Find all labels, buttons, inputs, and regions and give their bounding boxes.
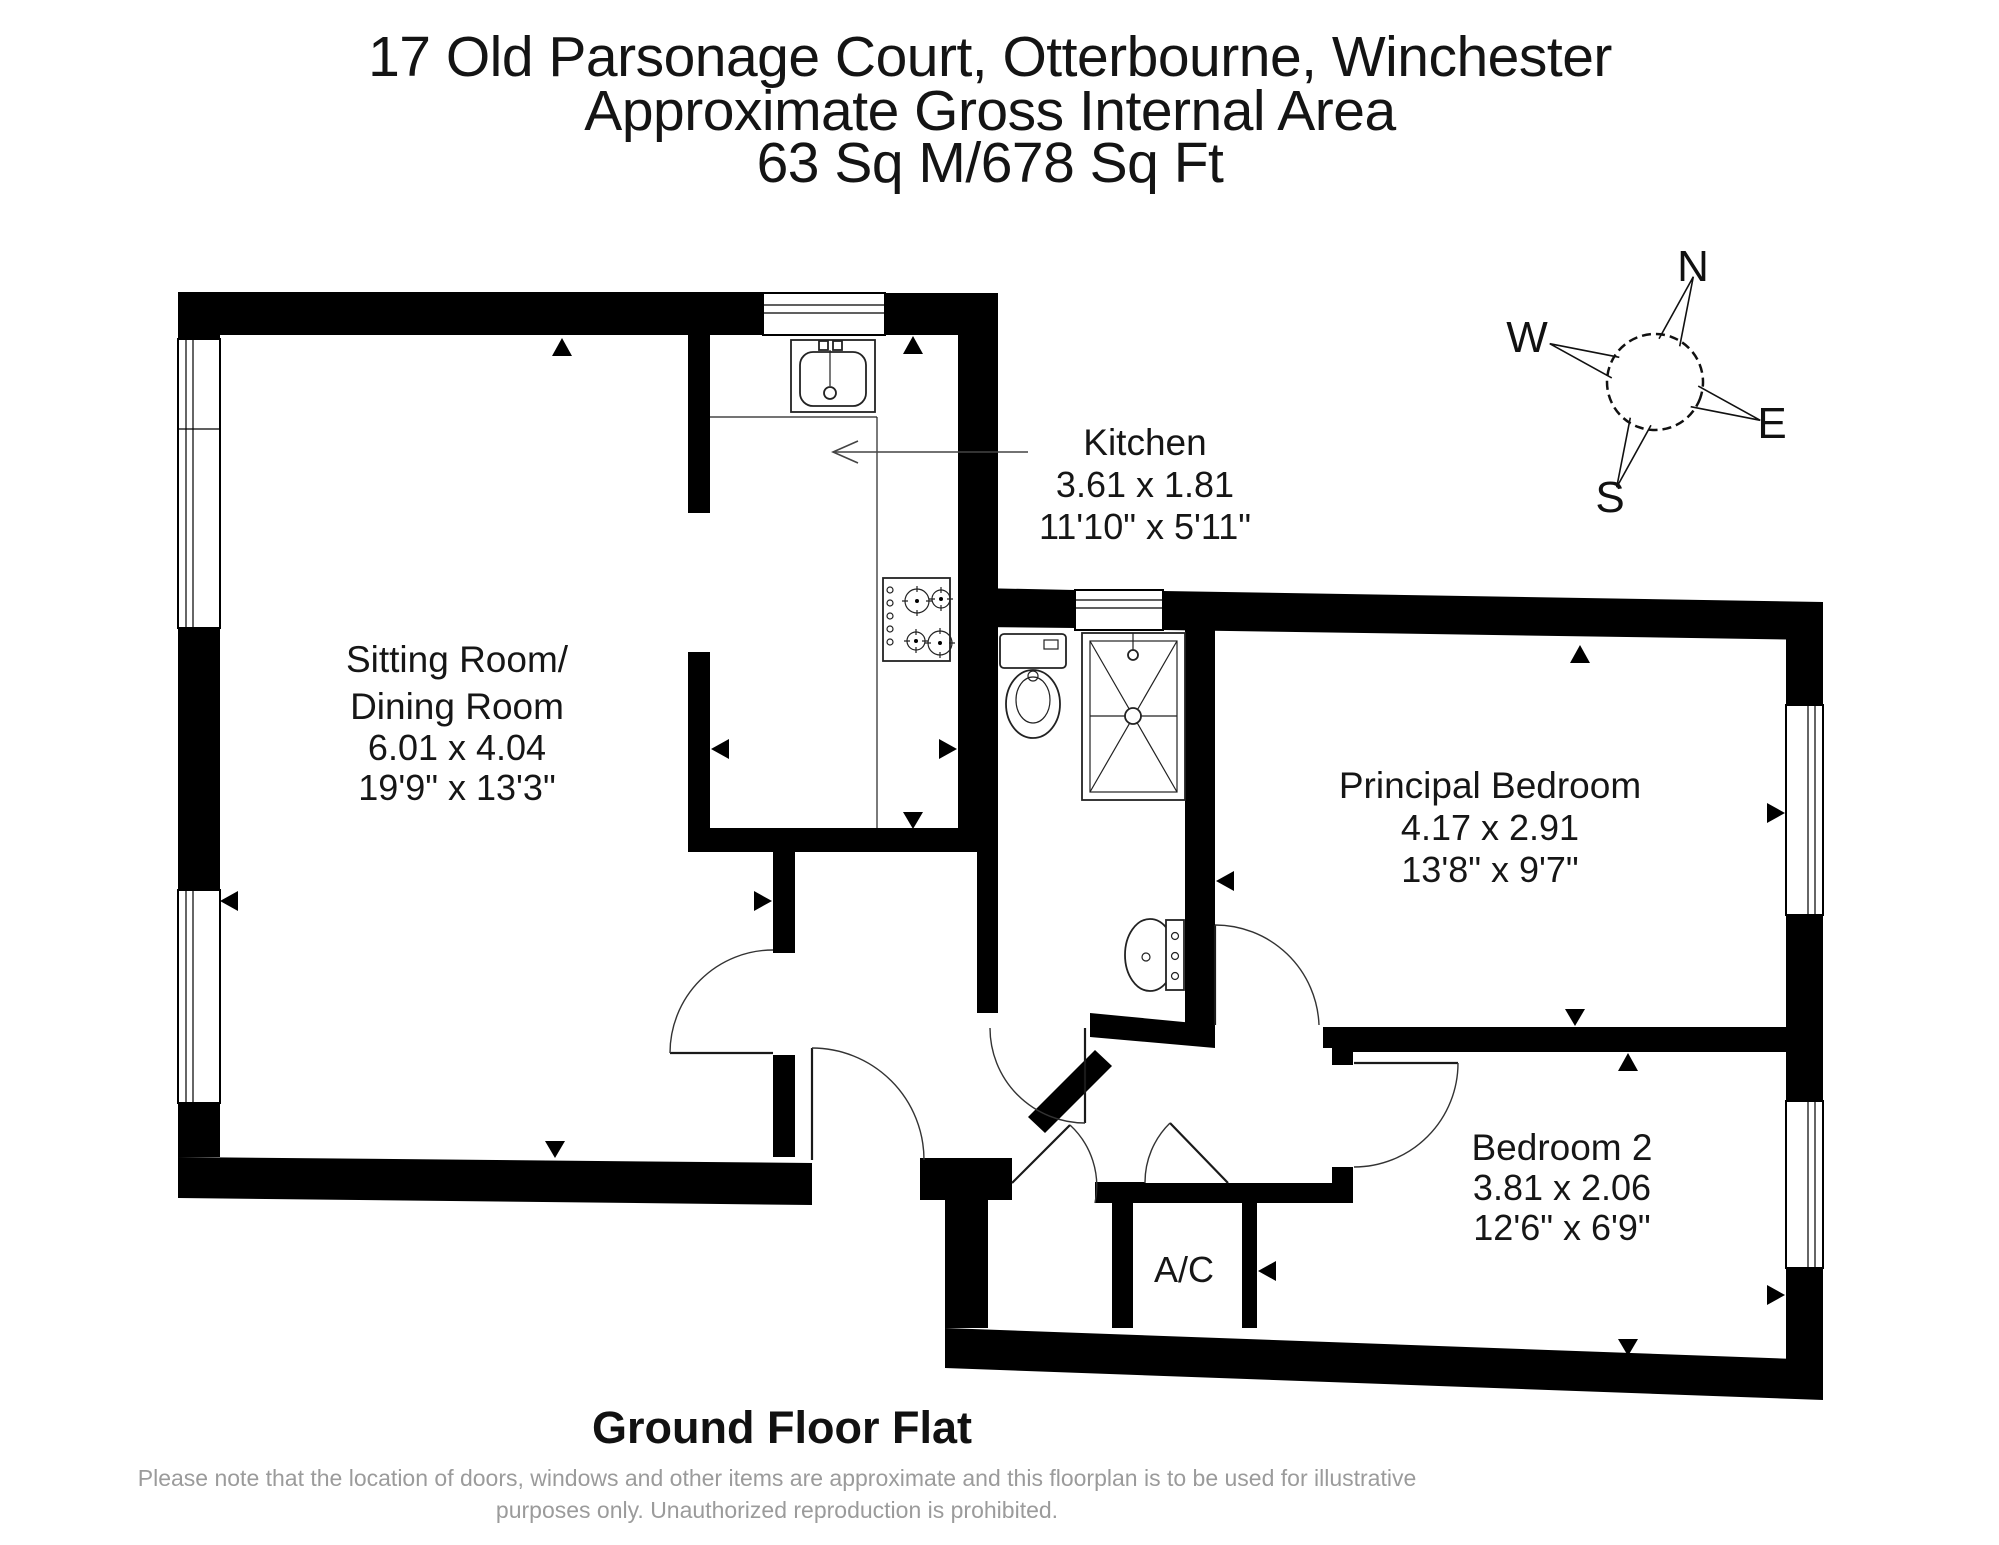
floorplan-page: 17 Old Parsonage Court, Otterbourne, Win… xyxy=(0,0,1999,1545)
wall-sitting-right-b xyxy=(773,1055,795,1157)
door-front-entrance xyxy=(812,1048,924,1160)
kitchen-pointer-arrow xyxy=(833,441,1028,463)
basin-icon xyxy=(1125,919,1184,991)
wall-right-lower xyxy=(1786,1268,1823,1368)
wall-bath-top xyxy=(977,588,1075,628)
window-principal-right xyxy=(1786,705,1823,915)
marker-kitchen-down-icon xyxy=(903,812,923,829)
door-principal-bedroom xyxy=(1215,925,1319,1025)
door-hall-cupboard xyxy=(1012,1125,1097,1203)
wall-kitchen-bottom xyxy=(688,828,977,852)
marker-principal-down-icon xyxy=(1565,1009,1585,1026)
marker-principal-left-icon xyxy=(1216,871,1234,891)
kitchen-name: Kitchen xyxy=(1083,422,1206,463)
toilet-icon xyxy=(1000,634,1066,738)
wall-left-lower xyxy=(178,1103,220,1157)
wall-bedroom-top xyxy=(1163,591,1823,640)
sitting-dim-imperial: 19'9" x 13'3" xyxy=(358,767,555,808)
window-bedroom2-right xyxy=(1786,1101,1823,1268)
wall-left-upper xyxy=(178,292,220,339)
wall-bottom-main xyxy=(945,1328,1823,1400)
bedroom2-name: Bedroom 2 xyxy=(1472,1127,1653,1168)
sitting-dim-metric: 6.01 x 4.04 xyxy=(368,727,546,768)
kitchen-sink-icon xyxy=(791,340,875,412)
floor-name-label: Ground Floor Flat xyxy=(592,1402,972,1453)
principal-dim-metric: 4.17 x 2.91 xyxy=(1401,807,1579,848)
room-label-kitchen: Kitchen 3.61 x 1.81 11'10" x 5'11" xyxy=(1039,422,1251,547)
marker-principal-right-icon xyxy=(1767,803,1785,823)
window-bathroom-top xyxy=(1075,590,1163,630)
wall-hall-diagonal xyxy=(1028,1050,1112,1133)
kitchen-hob-icon xyxy=(883,578,955,661)
wall-bedroom2-top xyxy=(1353,1027,1786,1052)
compass-east-label: E xyxy=(1757,399,1786,448)
window-sitting-left-upper xyxy=(178,339,220,628)
wall-jut-left xyxy=(945,1200,988,1328)
marker-kitchen-left-icon xyxy=(711,739,729,759)
marker-sitting-down-icon xyxy=(545,1141,565,1158)
kitchen-dim-metric: 3.61 x 1.81 xyxy=(1056,464,1234,505)
title-line-3: 63 Sq M/678 Sq Ft xyxy=(757,131,1224,195)
sitting-name-line2: Dining Room xyxy=(350,686,564,727)
marker-sitting-up-icon xyxy=(552,338,572,356)
bedroom2-dim-imperial: 12'6" x 6'9" xyxy=(1473,1207,1650,1248)
wall-partition-lower xyxy=(688,652,710,847)
marker-sitting-left-icon xyxy=(220,891,238,911)
wall-sitting-bottom xyxy=(178,1157,812,1205)
principal-name: Principal Bedroom xyxy=(1339,765,1641,806)
compass-south-label: S xyxy=(1595,473,1624,522)
wall-right-upper xyxy=(1786,602,1823,705)
wall-right-mid xyxy=(1786,915,1823,1101)
wall-top-left xyxy=(178,292,763,335)
sitting-name-line1: Sitting Room/ xyxy=(346,639,569,680)
room-label-principal: Principal Bedroom 4.17 x 2.91 13'8" x 9'… xyxy=(1339,765,1641,890)
room-label-bedroom2: Bedroom 2 3.81 x 2.06 12'6" x 6'9" xyxy=(1472,1127,1653,1248)
wall-corridor-south xyxy=(1145,1183,1353,1203)
window-kitchen-top xyxy=(763,293,885,335)
compass-north-label: N xyxy=(1677,242,1709,291)
marker-sitting-right-icon xyxy=(754,891,772,911)
principal-dim-imperial: 13'8" x 9'7" xyxy=(1401,849,1578,890)
door-ac-cupboard xyxy=(1145,1123,1228,1183)
wall-kitchen-right xyxy=(958,295,998,852)
wall-partition-upper xyxy=(688,335,710,513)
wall-bath-divider xyxy=(1185,628,1215,1025)
compass-west-label: W xyxy=(1506,313,1548,362)
window-sitting-left-lower xyxy=(178,890,220,1103)
marker-bedroom2-right-icon xyxy=(1767,1285,1785,1305)
room-label-sitting: Sitting Room/ Dining Room 6.01 x 4.04 19… xyxy=(346,639,569,808)
compass-rose-icon: N W E S xyxy=(1506,238,1798,525)
marker-kitchen-up-icon xyxy=(903,336,923,354)
wall-ac-right xyxy=(1242,1203,1257,1328)
marker-bedroom2-up-icon xyxy=(1618,1053,1638,1071)
disclaimer-line2: purposes only. Unauthorized reproduction… xyxy=(496,1497,1058,1523)
kitchen-dim-imperial: 11'10" x 5'11" xyxy=(1039,506,1251,547)
wall-bedroom2-jamb-top xyxy=(1323,1027,1353,1065)
wall-hall-east xyxy=(977,852,998,1013)
shower-icon xyxy=(1082,633,1185,800)
page-title: 17 Old Parsonage Court, Otterbourne, Win… xyxy=(368,25,1612,195)
door-bedroom2 xyxy=(1354,1063,1458,1167)
wall-sitting-right-a xyxy=(773,847,795,953)
marker-principal-up-icon xyxy=(1570,645,1590,663)
room-label-ac: A/C xyxy=(1154,1249,1214,1290)
wall-ac-left-block xyxy=(1095,1182,1145,1328)
marker-kitchen-right-icon xyxy=(939,739,957,759)
disclaimer-line1: Please note that the location of doors, … xyxy=(138,1465,1417,1491)
wall-hall-bottom xyxy=(920,1158,1012,1200)
kitchen-counter-line xyxy=(710,417,877,828)
wall-left-mid xyxy=(178,628,220,890)
bedroom2-dim-metric: 3.81 x 2.06 xyxy=(1473,1167,1651,1208)
marker-bedroom2-left-icon xyxy=(1258,1261,1276,1281)
door-sitting-room xyxy=(670,950,773,1053)
